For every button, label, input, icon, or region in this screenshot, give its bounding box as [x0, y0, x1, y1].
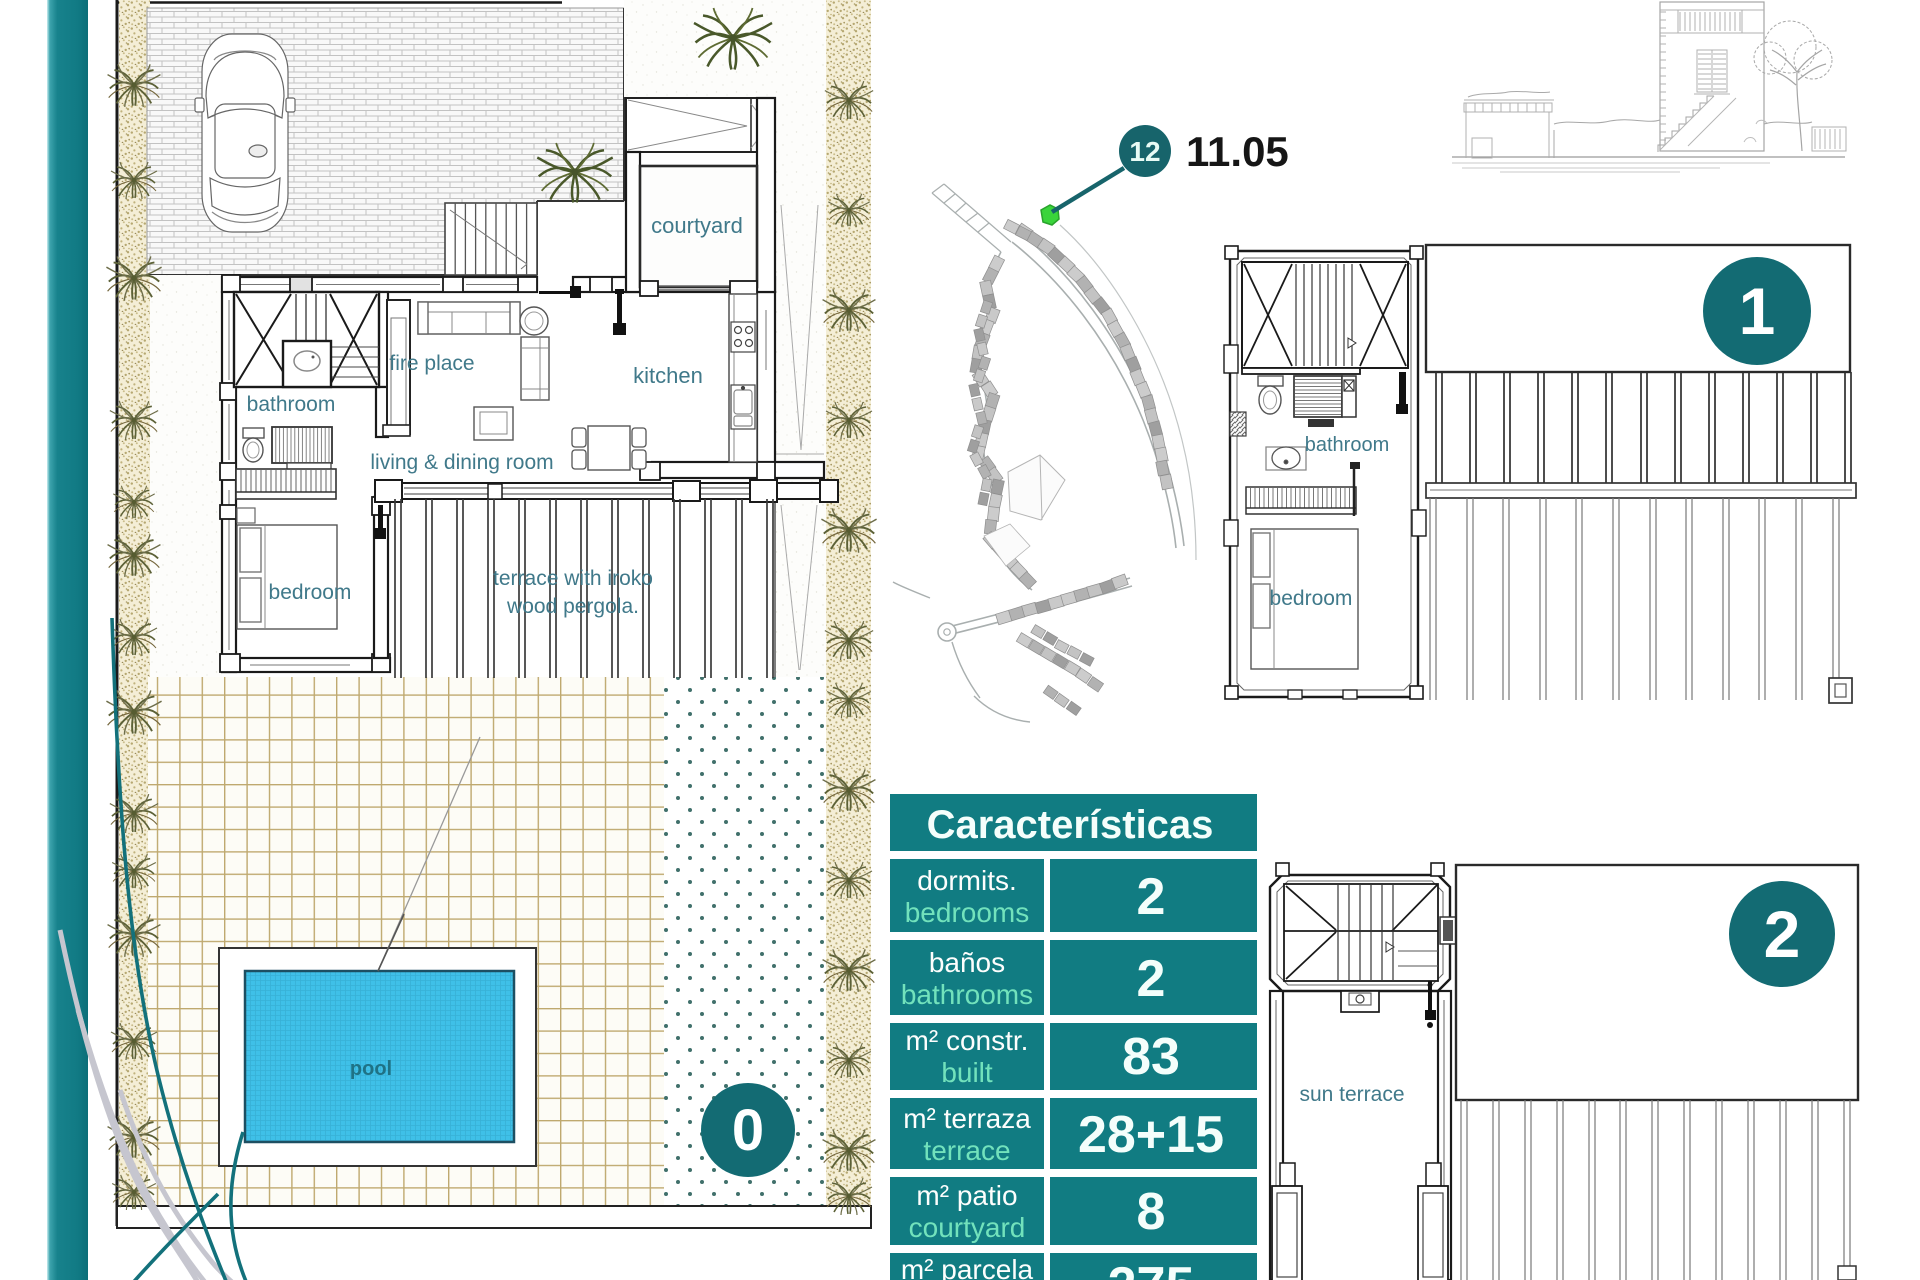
svg-text:1: 1: [1739, 274, 1776, 348]
svg-text:bathroom: bathroom: [1305, 434, 1390, 456]
svg-text:2: 2: [1137, 868, 1166, 926]
svg-text:fire place: fire place: [389, 352, 474, 375]
svg-text:built: built: [941, 1057, 993, 1088]
svg-text:28+15: 28+15: [1078, 1106, 1224, 1164]
svg-text:baños: baños: [929, 947, 1005, 978]
svg-text:275: 275: [1108, 1257, 1195, 1280]
svg-text:dormits.: dormits.: [917, 865, 1017, 896]
svg-text:pool: pool: [350, 1058, 392, 1080]
svg-text:kitchen: kitchen: [633, 363, 703, 388]
svg-text:Características: Características: [927, 803, 1214, 847]
svg-text:2: 2: [1764, 897, 1801, 971]
svg-text:m² terraza: m² terraza: [903, 1103, 1031, 1134]
svg-text:m² patio: m² patio: [916, 1180, 1017, 1211]
svg-text:bedroom: bedroom: [269, 581, 352, 604]
svg-text:0: 0: [732, 1098, 764, 1163]
svg-text:wood pergola.: wood pergola.: [506, 595, 639, 618]
svg-text:bathroom: bathroom: [247, 393, 336, 416]
svg-text:terrace: terrace: [923, 1135, 1010, 1166]
svg-text:bathrooms: bathrooms: [901, 979, 1033, 1010]
svg-text:living & dining room: living & dining room: [370, 451, 553, 474]
svg-text:m² constr.: m² constr.: [906, 1025, 1029, 1056]
svg-text:sun terrace: sun terrace: [1299, 1083, 1404, 1106]
svg-text:2: 2: [1137, 950, 1166, 1008]
svg-text:83: 83: [1122, 1028, 1180, 1086]
svg-text:bedrooms: bedrooms: [905, 897, 1030, 928]
svg-text:8: 8: [1137, 1183, 1166, 1241]
svg-text:bedroom: bedroom: [1270, 587, 1353, 610]
svg-text:m² parcela: m² parcela: [901, 1254, 1034, 1280]
svg-text:12: 12: [1129, 136, 1160, 167]
svg-text:11.05: 11.05: [1186, 128, 1289, 175]
svg-text:terrace with iroko: terrace with iroko: [493, 567, 653, 590]
svg-text:courtyard: courtyard: [909, 1212, 1026, 1243]
svg-text:courtyard: courtyard: [651, 213, 743, 238]
